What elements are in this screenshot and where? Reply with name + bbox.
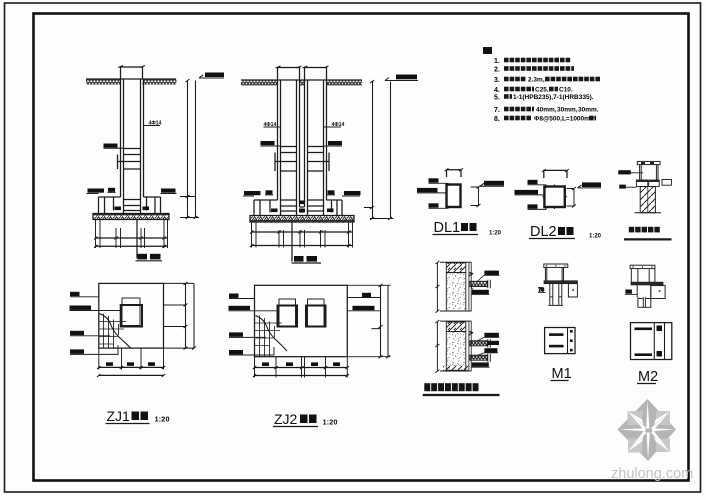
svg-text:4.: 4. [494,87,500,94]
svg-text:1:20: 1:20 [155,415,170,424]
svg-text:C10.: C10. [559,87,573,94]
svg-text:M1: M1 [552,366,572,382]
svg-text:40mm,: 40mm, [536,107,557,114]
svg-text:7.: 7. [494,107,500,114]
svg-text:DL1: DL1 [434,220,461,236]
svg-text:ZJ1: ZJ1 [107,408,131,424]
svg-text:2.: 2. [494,67,500,74]
svg-text:DL2: DL2 [530,224,557,240]
svg-text:1:20: 1:20 [589,234,602,240]
svg-text:C25,: C25, [535,87,549,94]
svg-text:5.: 5. [494,95,500,102]
svg-text:zhulong.com: zhulong.com [611,466,693,482]
svg-text:1.: 1. [494,58,500,65]
svg-text:M2: M2 [638,369,658,385]
svg-text:ZJ2: ZJ2 [274,411,298,427]
svg-text:Φ8@500,L=1000mm: Φ8@500,L=1000mm [534,116,596,123]
svg-text:1:20: 1:20 [323,418,338,427]
svg-text:30mm.: 30mm. [578,107,599,114]
svg-text:8.: 8. [494,116,500,123]
svg-text:30mm,: 30mm, [557,107,578,114]
svg-text:1:20: 1:20 [489,231,502,237]
svg-text:1-1(HPB235),7-1(HRB335).: 1-1(HPB235),7-1(HRB335). [513,94,594,101]
svg-text:2.3m,: 2.3m, [528,77,545,84]
svg-text:3.: 3. [494,77,500,84]
